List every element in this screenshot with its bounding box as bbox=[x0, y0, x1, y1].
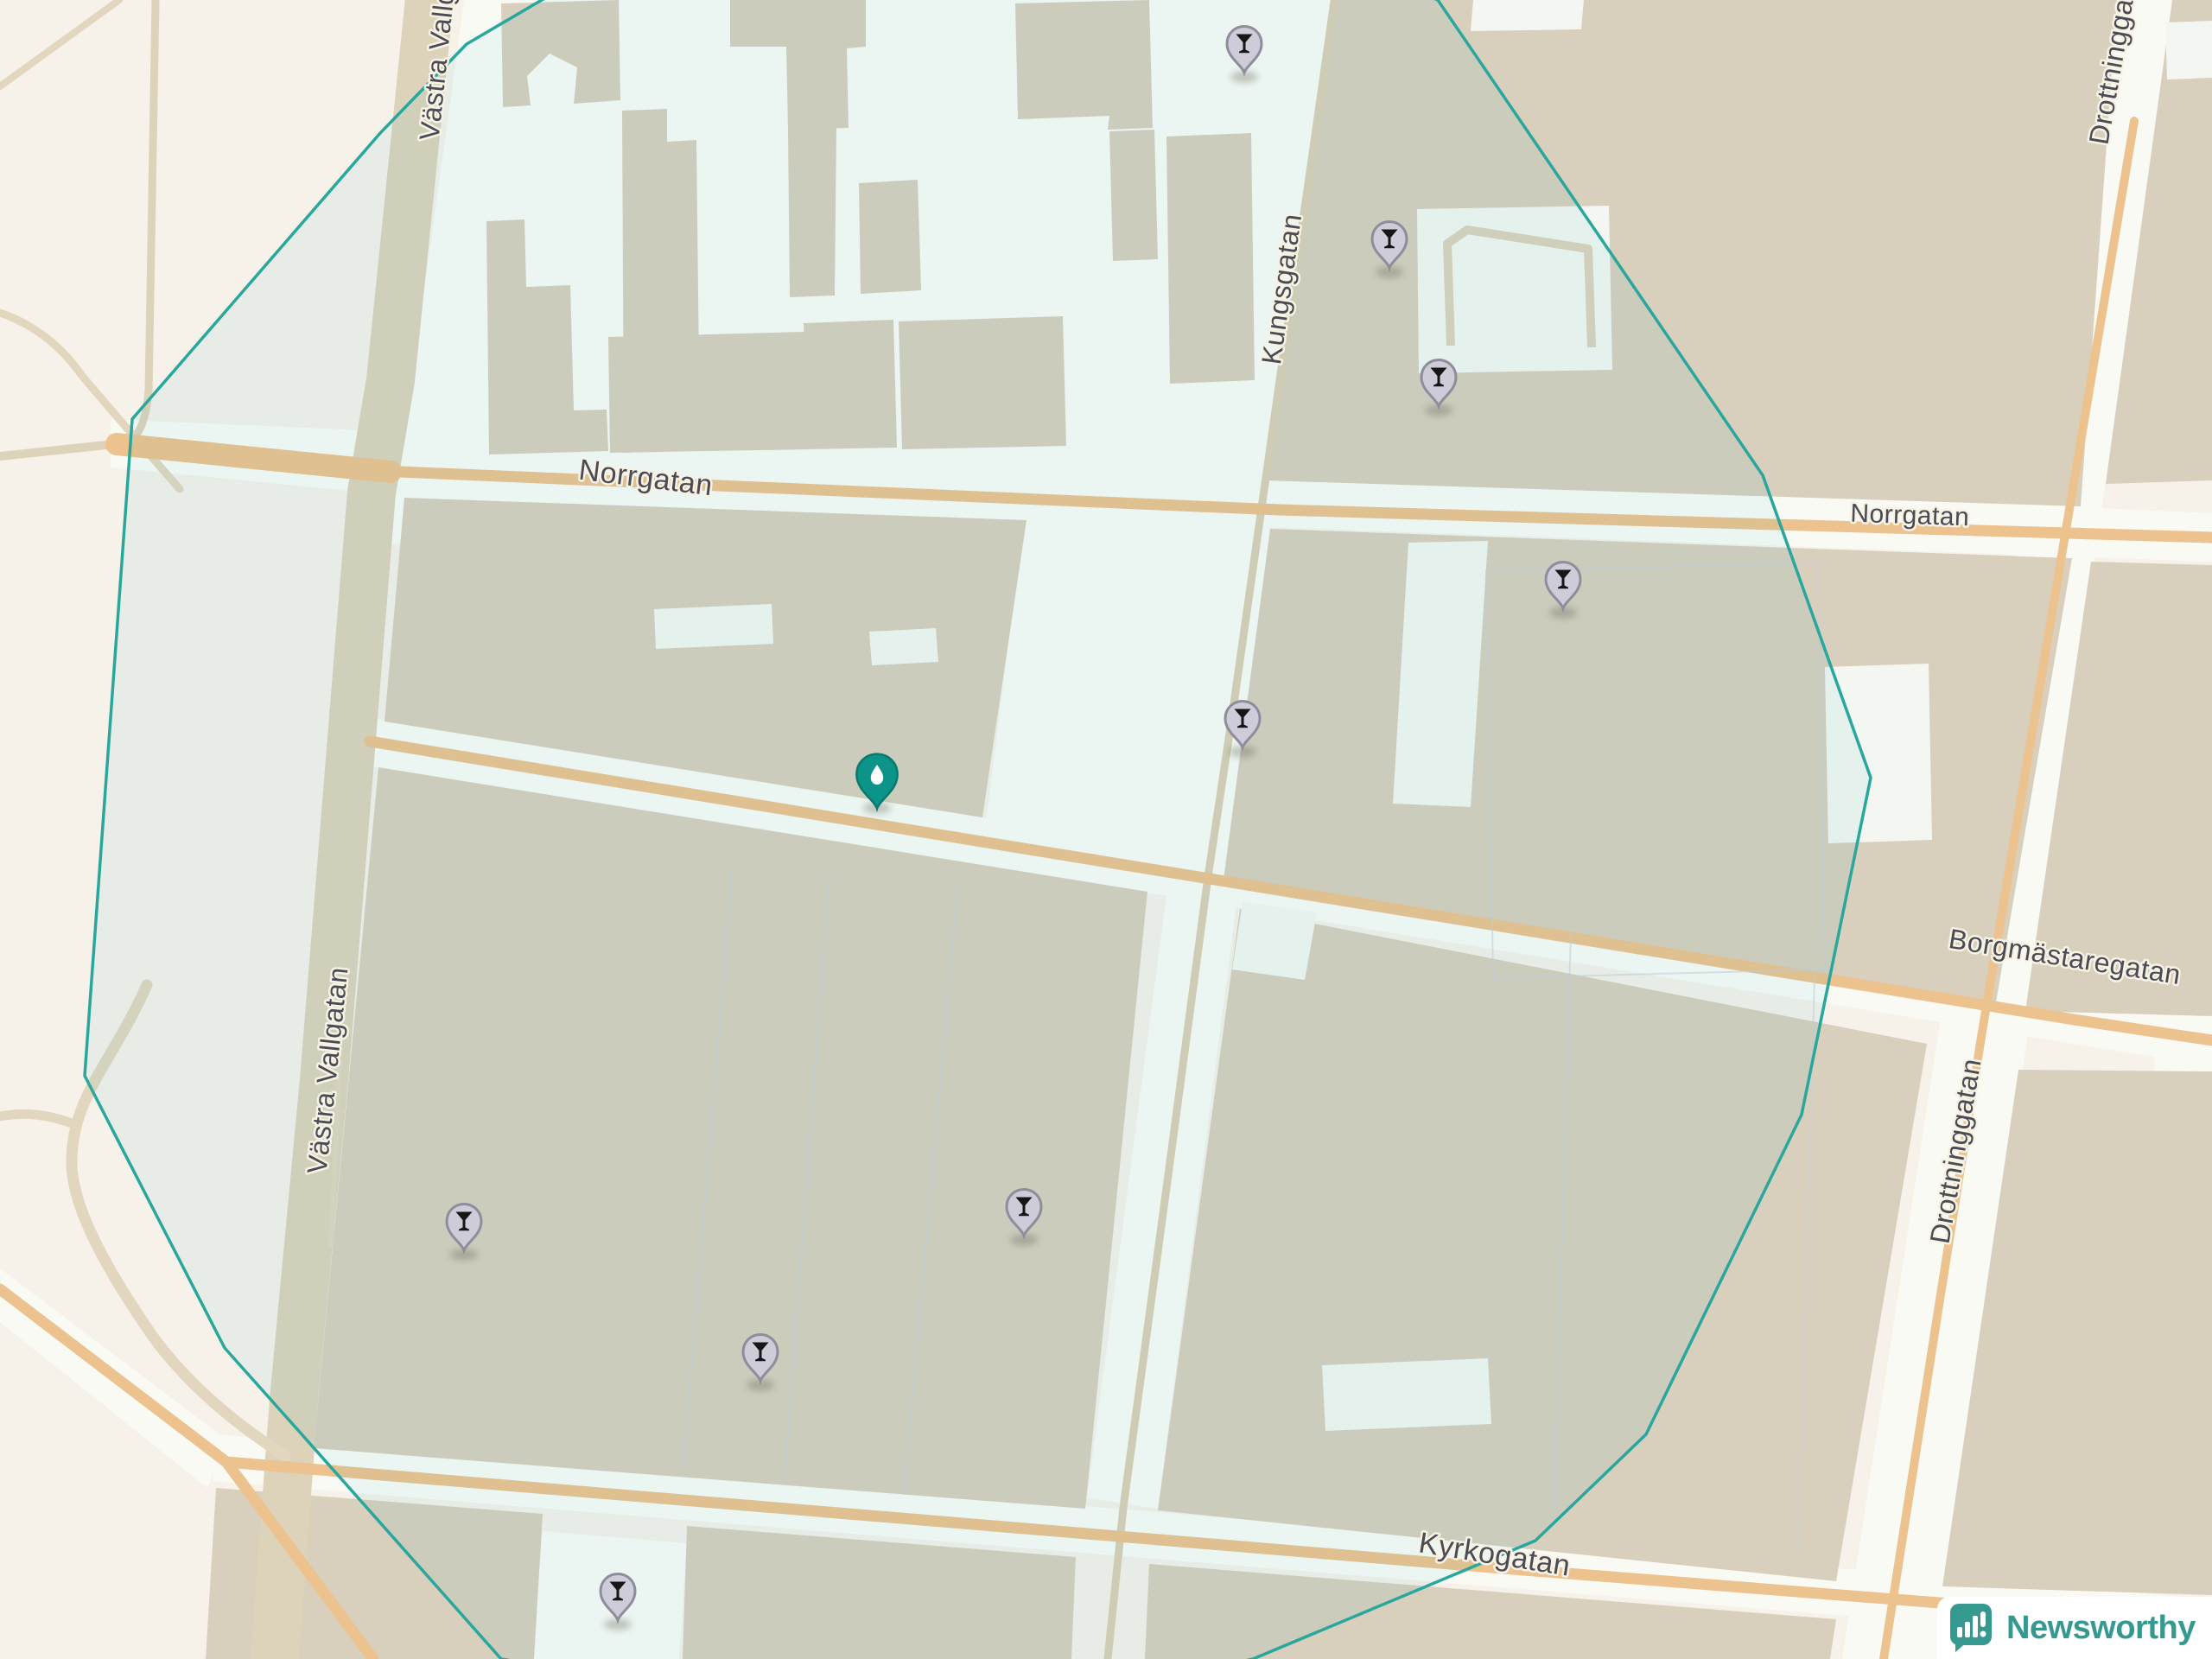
newsworthy-logo-icon bbox=[1949, 1603, 1994, 1653]
radius-area-overlay bbox=[85, 0, 1871, 1659]
street-label-norrgatan-east: Norrgatan bbox=[1850, 499, 1970, 532]
map-canvas[interactable]: Västra VallgatanVästra VallgatanKungsgat… bbox=[0, 0, 2212, 1659]
attribution-brand-text: Newsworthy bbox=[2006, 1610, 2196, 1647]
attribution-chip: Newsworthy bbox=[1937, 1597, 2212, 1659]
